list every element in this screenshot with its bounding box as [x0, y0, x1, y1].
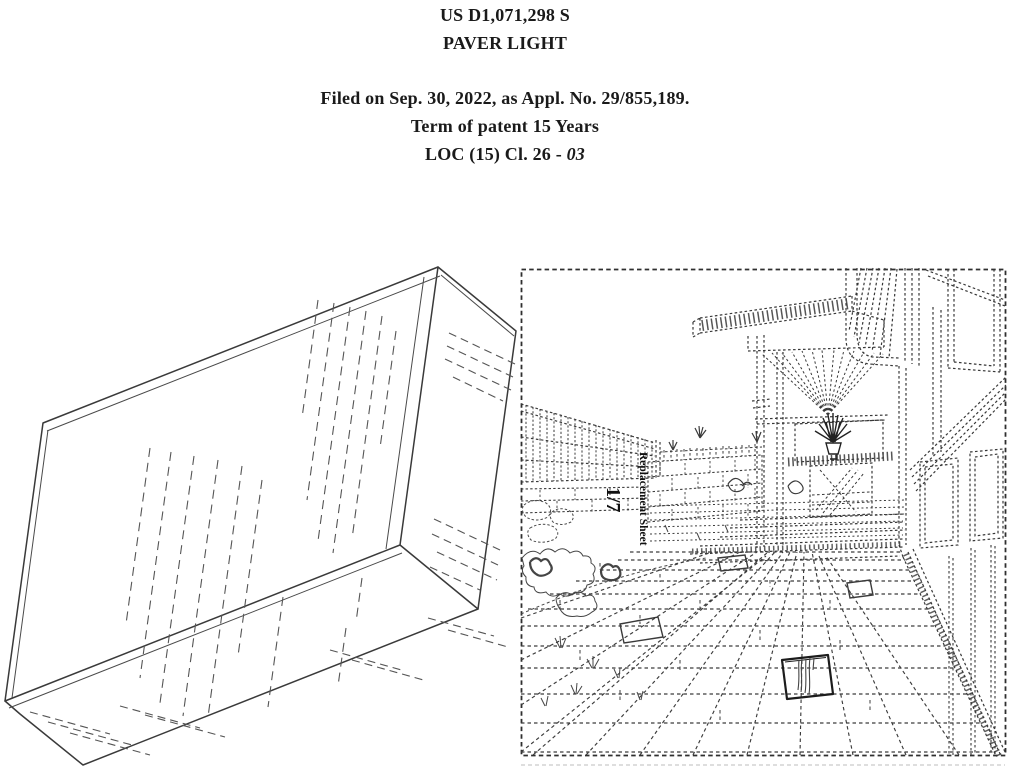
rocks: [522, 500, 573, 542]
paver-light-figure: [0, 260, 520, 771]
paver-block-shading: [30, 300, 515, 755]
loc-prefix: LOC (15) Cl. 26 -: [425, 144, 567, 164]
sheet-label: Replacement Sheet: [637, 452, 649, 546]
loc-line: LOC (15) Cl. 26 - 03: [0, 144, 1010, 164]
urn-plant: [815, 413, 851, 459]
patent-number: US D1,071,298 S: [0, 5, 1010, 25]
house-wall: [903, 268, 1006, 756]
highlight-pavers: [620, 555, 873, 643]
environment-figure: Replacement Sheet 1/7: [518, 264, 1010, 771]
paver-light-in-situ: [782, 655, 833, 699]
patent-page: US D1,071,298 S PAVER LIGHT Filed on Sep…: [0, 0, 1010, 771]
term-line: Term of patent 15 Years: [0, 116, 1010, 136]
paver-block-chamfer-lines: [9, 275, 514, 708]
paver-block-outline: [5, 267, 516, 765]
patent-title: PAVER LIGHT: [0, 33, 1010, 53]
loc-class: 03: [567, 144, 585, 164]
filed-line: Filed on Sep. 30, 2022, as Appl. No. 29/…: [0, 88, 1010, 108]
sheet-number: 1/7: [602, 487, 624, 513]
